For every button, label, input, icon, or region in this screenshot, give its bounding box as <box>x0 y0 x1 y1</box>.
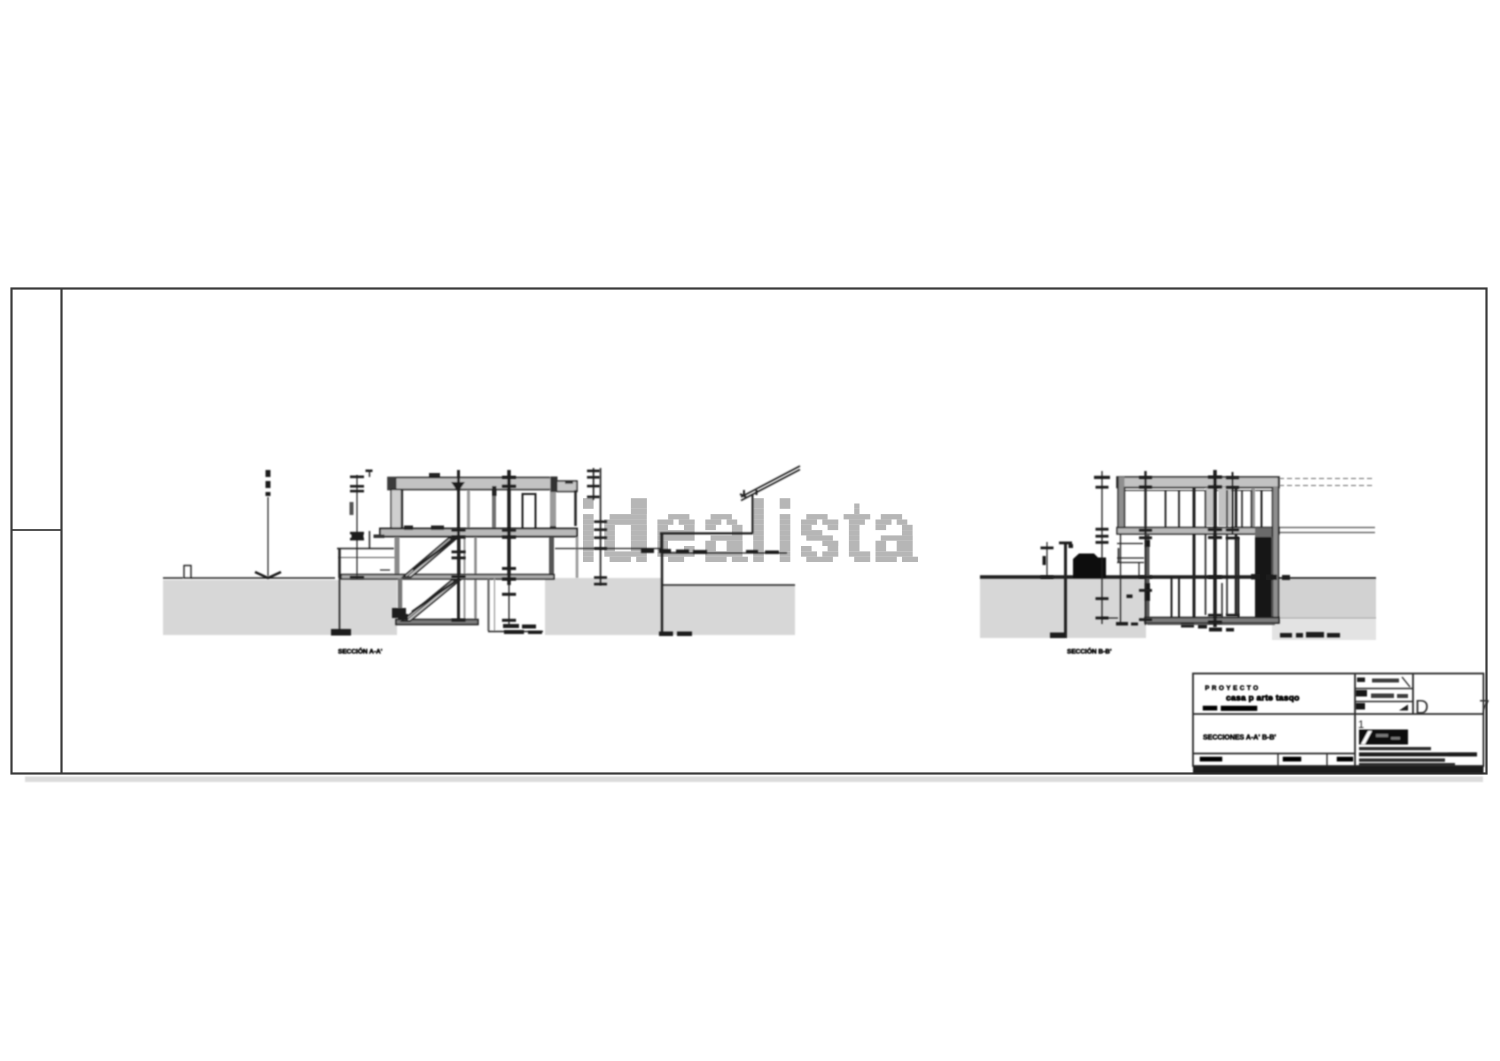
svg-text:SECCIÓN A-A': SECCIÓN A-A' <box>338 647 383 656</box>
svg-text:casa p arte tasqo: casa p arte tasqo <box>1226 693 1300 703</box>
svg-text:7: 7 <box>1479 698 1490 719</box>
svg-text:PROYECTO: PROYECTO <box>1205 685 1261 692</box>
svg-text:D: D <box>1415 698 1429 719</box>
svg-text:SECCIONES A-A' B-B': SECCIONES A-A' B-B' <box>1203 735 1276 742</box>
svg-text:SECCIÓN B-B': SECCIÓN B-B' <box>1067 647 1112 656</box>
svg-text:1: 1 <box>1358 719 1364 731</box>
